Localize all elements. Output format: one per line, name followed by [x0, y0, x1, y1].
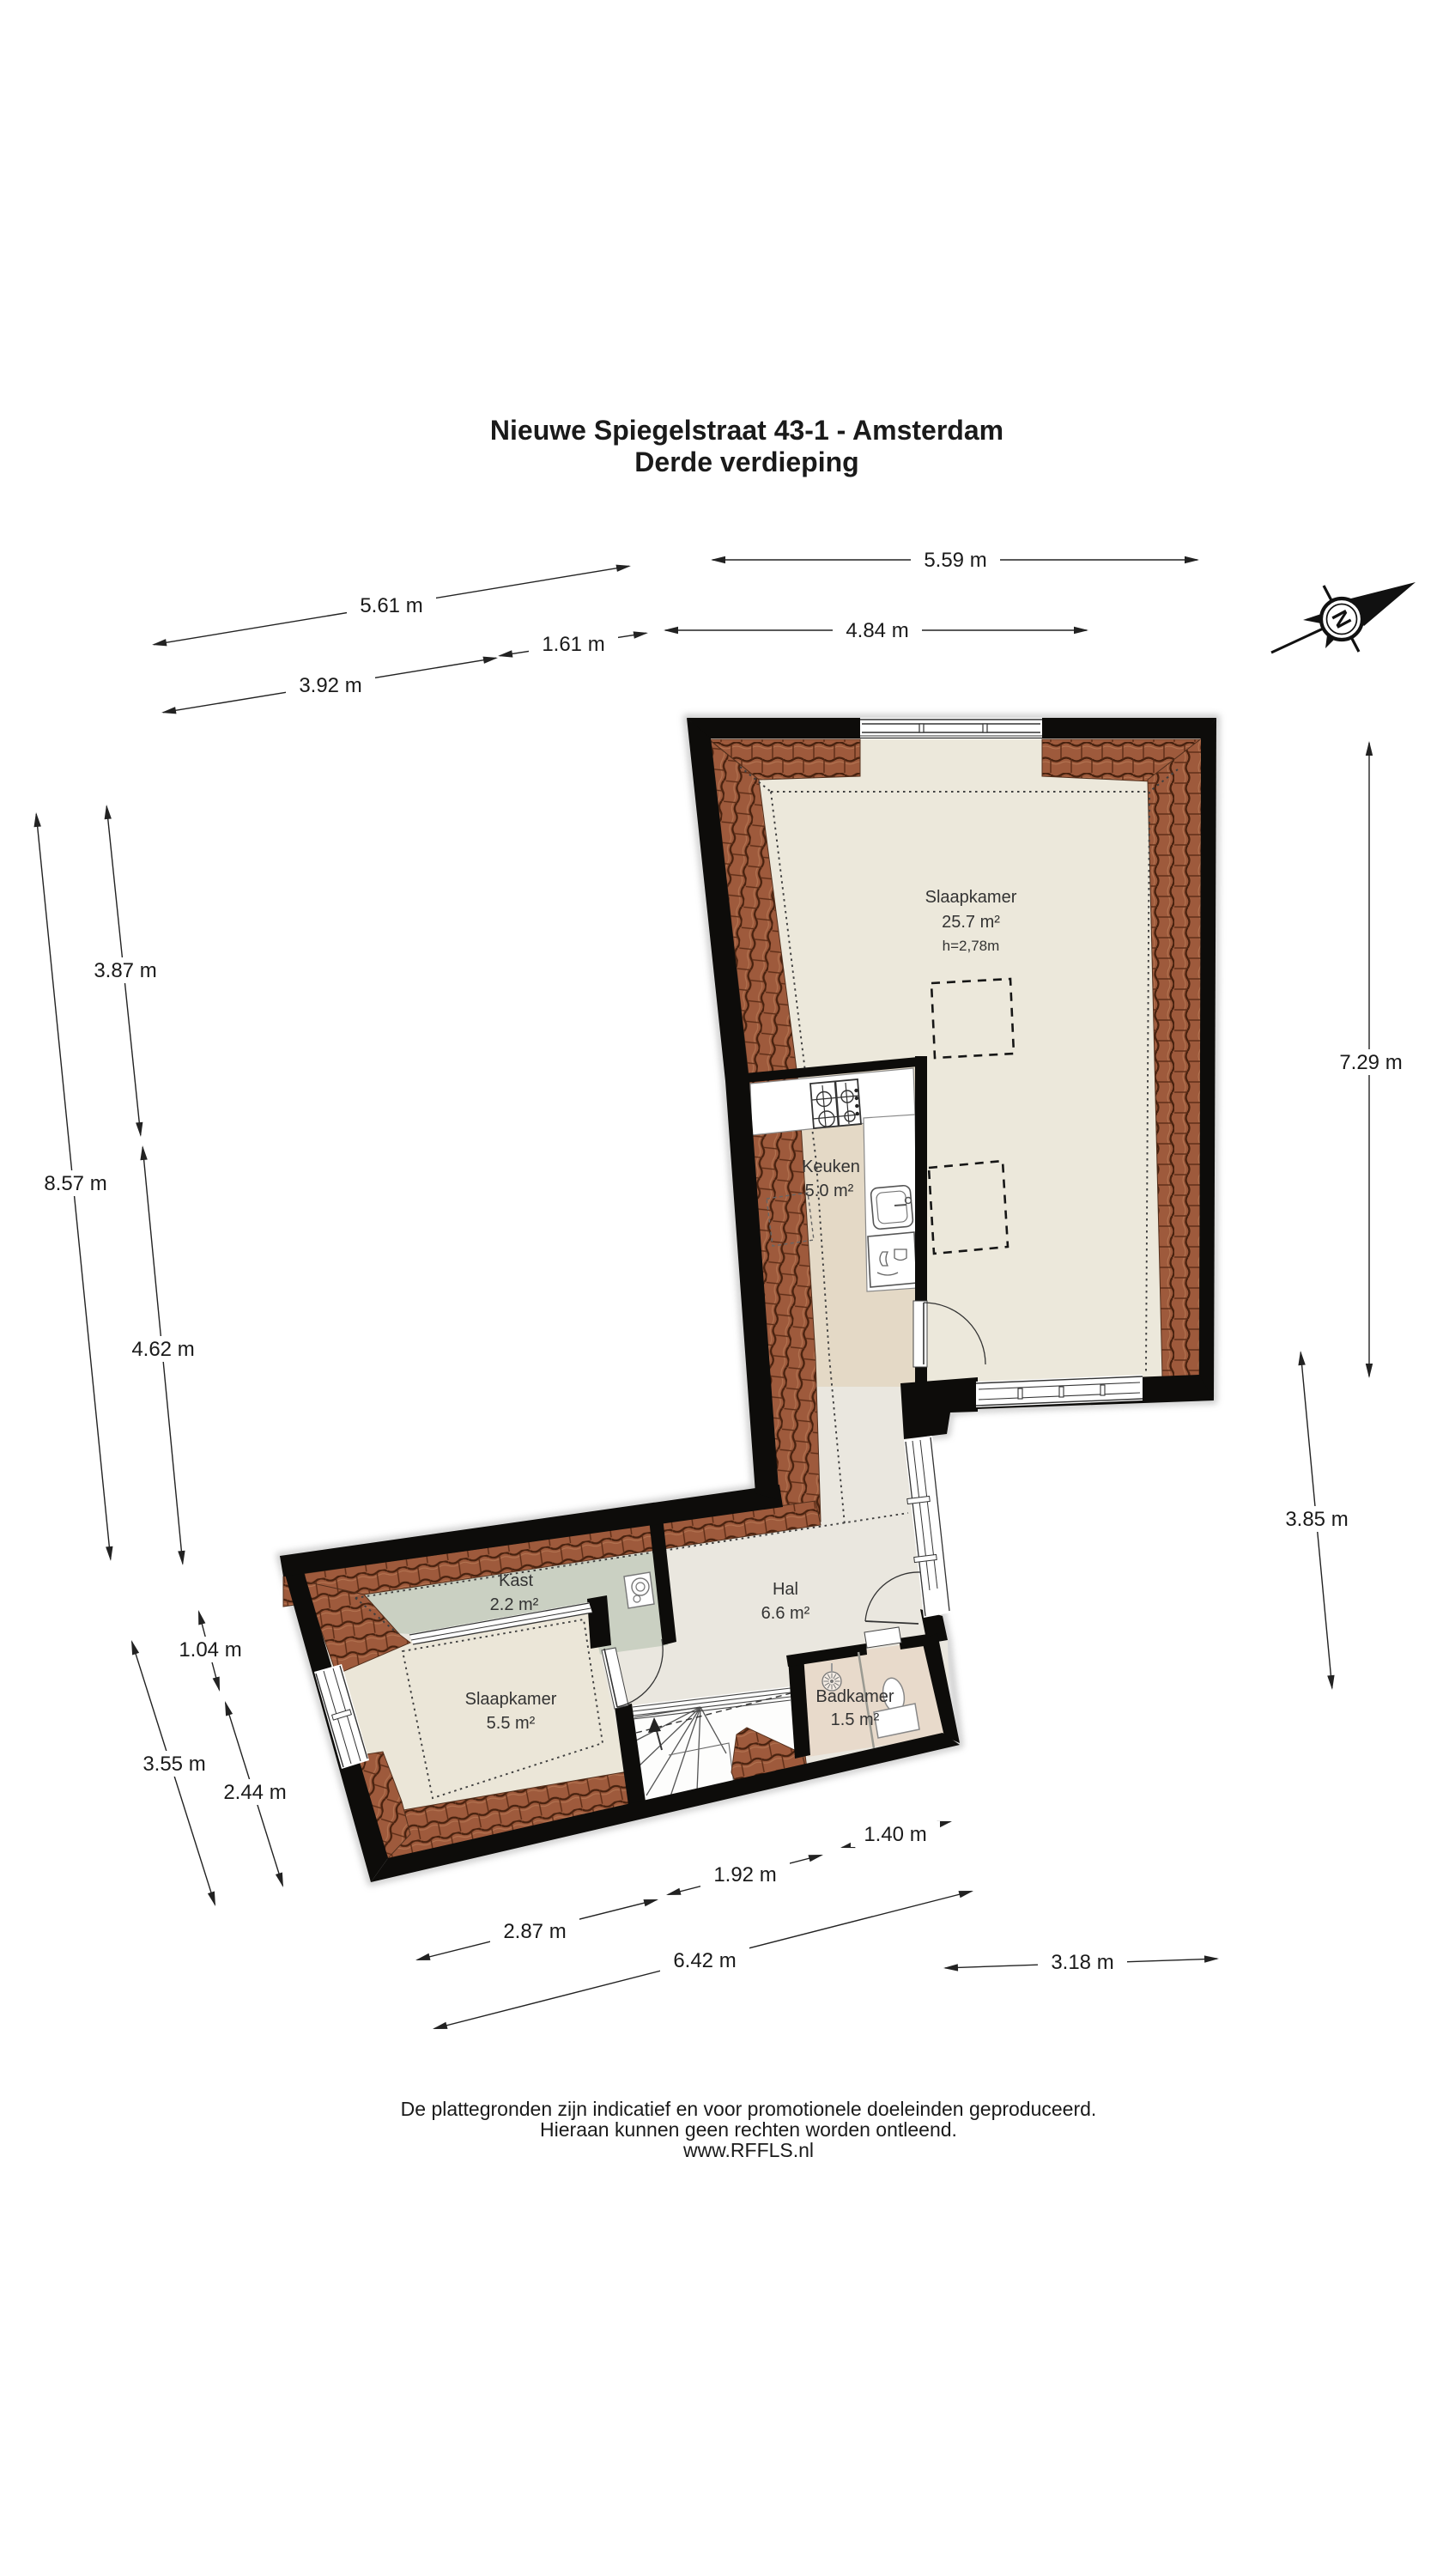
svg-text:1.61 m: 1.61 m — [542, 633, 604, 656]
svg-text:Nieuwe Spiegelstraat 43-1 - Am: Nieuwe Spiegelstraat 43-1 - Amsterdam — [490, 415, 1003, 446]
svg-text:5.59 m: 5.59 m — [924, 549, 986, 572]
svg-text:4.62 m: 4.62 m — [131, 1338, 194, 1361]
svg-text:5.61 m: 5.61 m — [360, 594, 422, 617]
svg-text:2.2 m²: 2.2 m² — [490, 1595, 539, 1614]
svg-text:Hieraan kunnen geen rechten wo: Hieraan kunnen geen rechten worden ontle… — [540, 2118, 957, 2141]
svg-text:6.42 m: 6.42 m — [673, 1949, 736, 1972]
svg-text:3.92 m: 3.92 m — [299, 674, 361, 697]
svg-text:25.7 m²: 25.7 m² — [942, 913, 1000, 932]
svg-text:Keuken: Keuken — [802, 1157, 860, 1176]
svg-text:6.6 m²: 6.6 m² — [761, 1604, 810, 1623]
svg-text:1.92 m: 1.92 m — [713, 1863, 776, 1886]
svg-text:5.0 m²: 5.0 m² — [805, 1182, 854, 1200]
svg-text:Kast: Kast — [499, 1571, 533, 1590]
svg-text:Slaapkamer: Slaapkamer — [465, 1690, 557, 1709]
svg-text:www.RFFLS.nl: www.RFFLS.nl — [682, 2139, 814, 2161]
svg-text:3.55 m: 3.55 m — [142, 1753, 205, 1776]
svg-text:3.87 m: 3.87 m — [94, 959, 156, 982]
svg-text:Hal: Hal — [773, 1580, 798, 1599]
svg-text:3.85 m: 3.85 m — [1285, 1508, 1348, 1531]
svg-text:1.04 m: 1.04 m — [179, 1638, 241, 1662]
svg-text:2.87 m: 2.87 m — [503, 1920, 566, 1943]
svg-text:Badkamer: Badkamer — [815, 1687, 894, 1706]
svg-text:h=2,78m: h=2,78m — [943, 938, 1000, 954]
svg-text:1.40 m: 1.40 m — [864, 1823, 926, 1846]
svg-text:4.84 m: 4.84 m — [846, 619, 908, 642]
svg-text:2.44 m: 2.44 m — [223, 1781, 286, 1804]
svg-text:Slaapkamer: Slaapkamer — [925, 888, 1017, 907]
svg-text:Derde verdieping: Derde verdieping — [634, 447, 858, 477]
svg-text:De plattegronden zijn indicati: De plattegronden zijn indicatief en voor… — [401, 2098, 1097, 2120]
svg-text:1.5 m²: 1.5 m² — [831, 1710, 880, 1729]
svg-text:3.18 m: 3.18 m — [1051, 1951, 1113, 1974]
svg-text:8.57 m: 8.57 m — [44, 1172, 106, 1195]
svg-text:7.29 m: 7.29 m — [1339, 1051, 1402, 1074]
svg-text:5.5 m²: 5.5 m² — [487, 1714, 536, 1733]
